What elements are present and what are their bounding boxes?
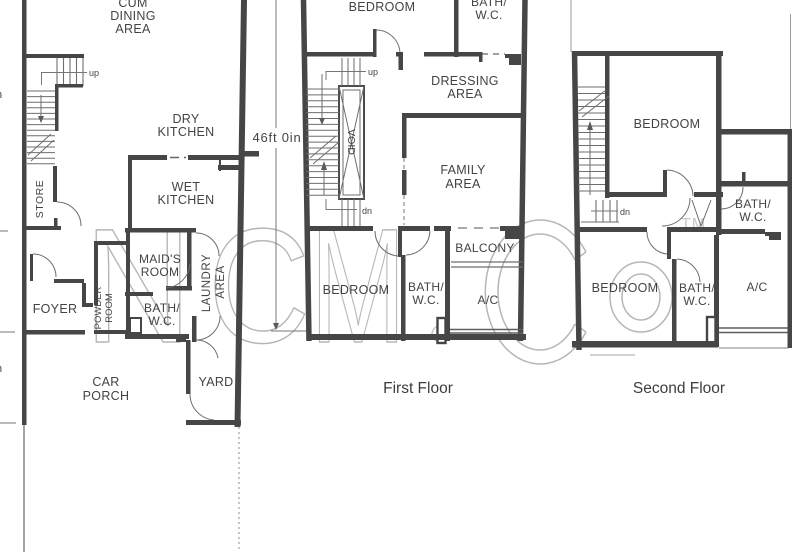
svg-text:n: n: [0, 89, 2, 101]
svg-text:BATH/: BATH/: [735, 197, 771, 211]
svg-text:W.C.: W.C.: [412, 293, 439, 307]
svg-text:BEDROOM: BEDROOM: [349, 0, 416, 14]
svg-text:BALCONY: BALCONY: [455, 241, 514, 255]
svg-text:AREA: AREA: [445, 177, 481, 191]
svg-text:FAMILY: FAMILY: [440, 163, 486, 177]
svg-text:POWDER: POWDER: [93, 286, 104, 329]
svg-text:W.C.: W.C.: [148, 314, 175, 328]
svg-text:MAID'S: MAID'S: [139, 252, 181, 266]
svg-text:KITCHEN: KITCHEN: [158, 125, 215, 139]
svg-text:DRESSING: DRESSING: [431, 74, 499, 88]
svg-text:FOYER: FOYER: [33, 302, 78, 316]
svg-text:W.C.: W.C.: [683, 294, 710, 308]
svg-text:AREA: AREA: [115, 22, 151, 36]
svg-text:up: up: [368, 67, 378, 77]
svg-text:Second Floor: Second Floor: [633, 380, 725, 397]
svg-text:First Floor: First Floor: [383, 380, 453, 397]
svg-text:CAR: CAR: [92, 375, 119, 389]
svg-text:ROOM: ROOM: [141, 265, 180, 279]
svg-text:STORE: STORE: [34, 180, 46, 218]
svg-text:A/C: A/C: [478, 293, 499, 307]
svg-text:BATH/: BATH/: [408, 280, 444, 294]
svg-text:PORCH: PORCH: [83, 389, 130, 403]
svg-text:WET: WET: [172, 180, 201, 194]
svg-text:BEDROOM: BEDROOM: [634, 117, 701, 131]
svg-text:VOID: VOID: [345, 129, 357, 155]
svg-text:DINING: DINING: [110, 9, 156, 23]
svg-text:ROOM: ROOM: [104, 293, 115, 323]
svg-text:W.C.: W.C.: [475, 8, 502, 22]
svg-text:DRY: DRY: [172, 112, 199, 126]
svg-text:AREA: AREA: [447, 87, 483, 101]
svg-text:up: up: [89, 68, 99, 78]
svg-text:BATH/: BATH/: [144, 301, 180, 315]
svg-text:dn: dn: [362, 206, 372, 216]
svg-text:BEDROOM: BEDROOM: [592, 281, 659, 295]
svg-text:LAUNDRY: LAUNDRY: [201, 254, 213, 312]
svg-text:W.C.: W.C.: [739, 210, 766, 224]
svg-text:dn: dn: [620, 207, 630, 217]
svg-text:BATH/: BATH/: [679, 281, 715, 295]
svg-text:A/C: A/C: [747, 280, 768, 294]
svg-text:BEDROOM: BEDROOM: [323, 283, 390, 297]
svg-text:AREA: AREA: [215, 265, 227, 298]
svg-text:KITCHEN: KITCHEN: [158, 193, 215, 207]
svg-text:YARD: YARD: [198, 375, 233, 389]
svg-text:46ft 0in: 46ft 0in: [252, 130, 301, 145]
svg-text:n: n: [0, 363, 2, 375]
